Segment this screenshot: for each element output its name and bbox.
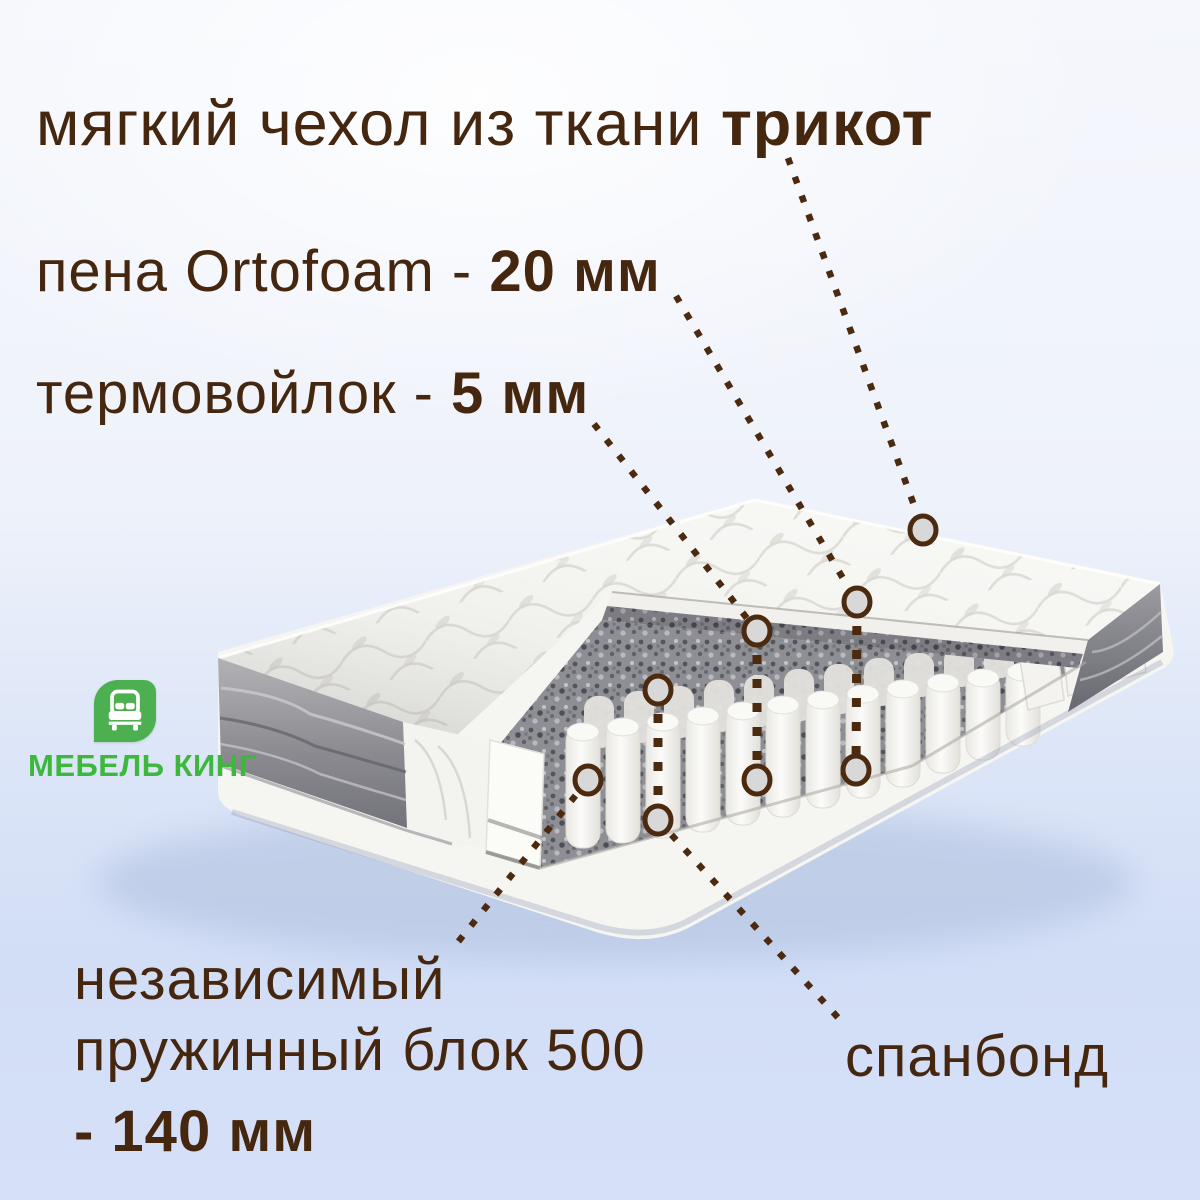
label-spring-block: независимый пружинный блок 500 - 140 мм [74,945,646,1167]
label-felt-value: 5 мм [451,361,589,426]
label-spring-value: - 140 мм [74,1097,646,1168]
bed-icon [99,685,151,737]
marker-cover [910,516,936,544]
label-cover-value: трикот [721,89,934,159]
marker-foam [844,588,870,616]
marker-spunbond [645,806,671,834]
marker-springs [575,766,601,794]
marker-springs-top [645,676,671,704]
label-spring-line1: независимый [74,947,445,1012]
brand-logo: МЕБЕЛЬ КИНГ [28,680,228,784]
label-felt: термовойлок - 5 мм [36,359,589,430]
label-cover-prefix: мягкий чехол из ткани [36,89,721,159]
callout-line-cover [788,158,923,530]
label-spring-line2: пружинный блок 500 [74,1018,646,1083]
marker-middle-bottom [744,766,770,794]
mattress-infographic: мягкий чехол из ткани трикот пена Ortofo… [0,0,1200,1200]
marker-felt [744,617,770,645]
label-cover: мягкий чехол из ткани трикот [36,86,934,163]
logo-caption: МЕБЕЛЬ КИНГ [28,748,228,784]
logo-badge [94,680,156,742]
label-spunbond-text: спанбонд [845,1024,1109,1089]
label-felt-prefix: термовойлок - [36,361,451,426]
marker-right-bottom [843,756,869,784]
label-spunbond: спанбонд [845,1022,1109,1093]
label-foam-value: 20 мм [489,239,660,304]
label-foam-prefix: пена Ortofoam - [36,239,489,304]
label-foam: пена Ortofoam - 20 мм [36,237,661,308]
